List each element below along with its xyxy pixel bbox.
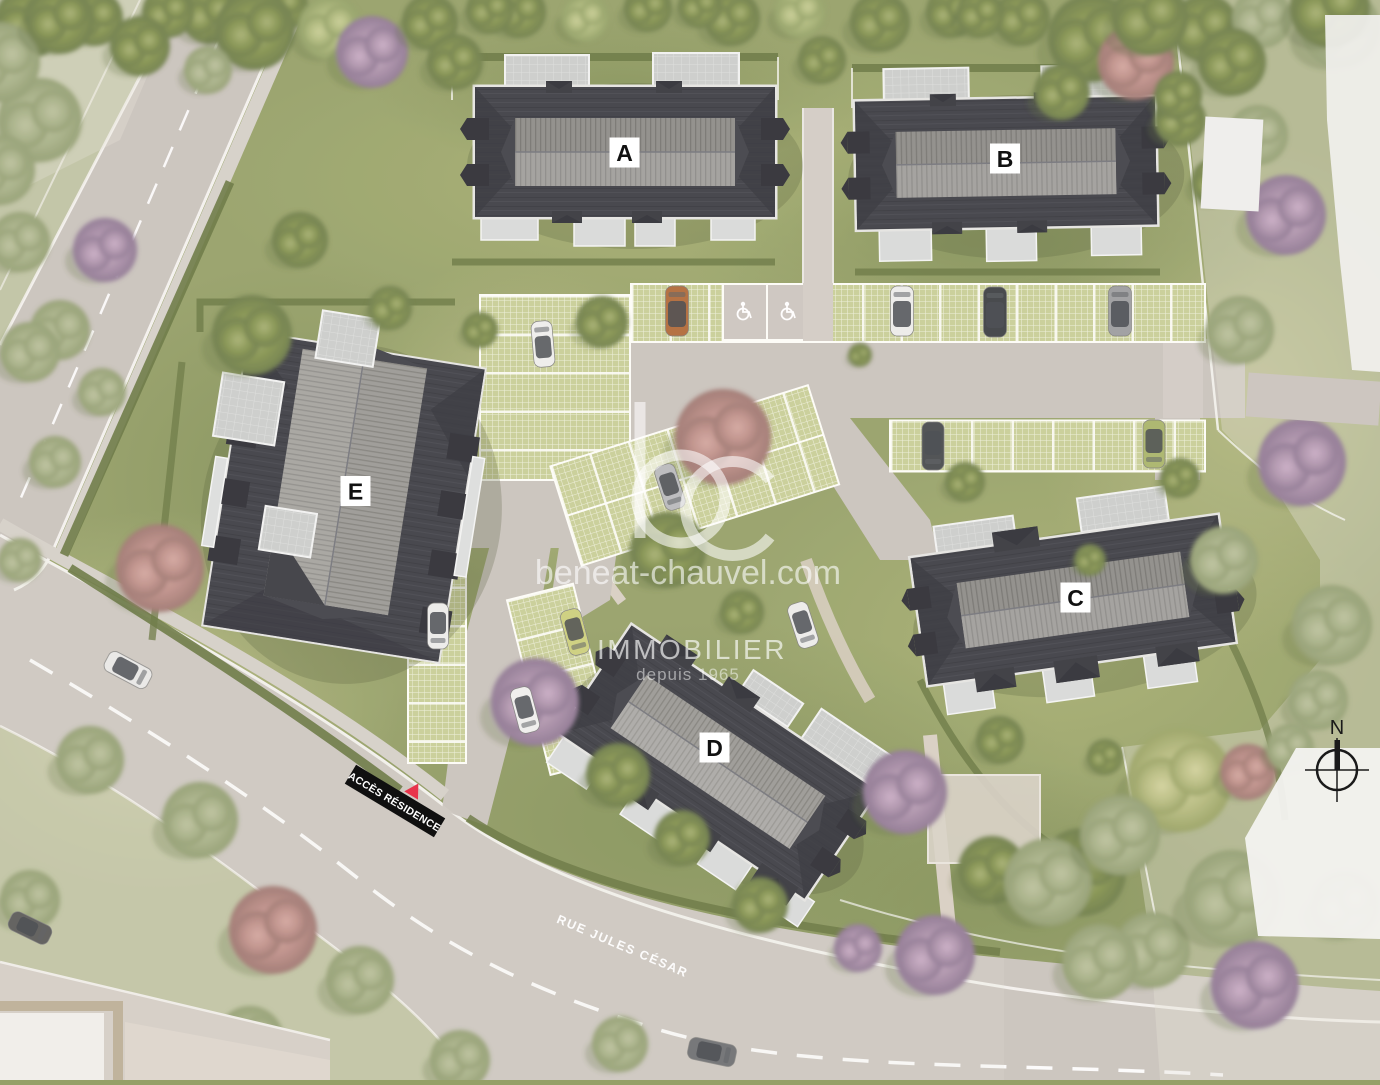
svg-text:depuis 1965: depuis 1965 bbox=[636, 665, 740, 684]
svg-text:C: C bbox=[1067, 585, 1084, 611]
svg-text:D: D bbox=[706, 735, 723, 761]
svg-text:N: N bbox=[1330, 717, 1344, 739]
svg-text:beneat-chauvel.com: beneat-chauvel.com bbox=[535, 554, 841, 592]
svg-text:A: A bbox=[616, 140, 633, 166]
svg-text:E: E bbox=[348, 479, 363, 505]
svg-text:B: B bbox=[997, 146, 1014, 172]
svg-text:IMMOBILIER: IMMOBILIER bbox=[597, 634, 787, 665]
